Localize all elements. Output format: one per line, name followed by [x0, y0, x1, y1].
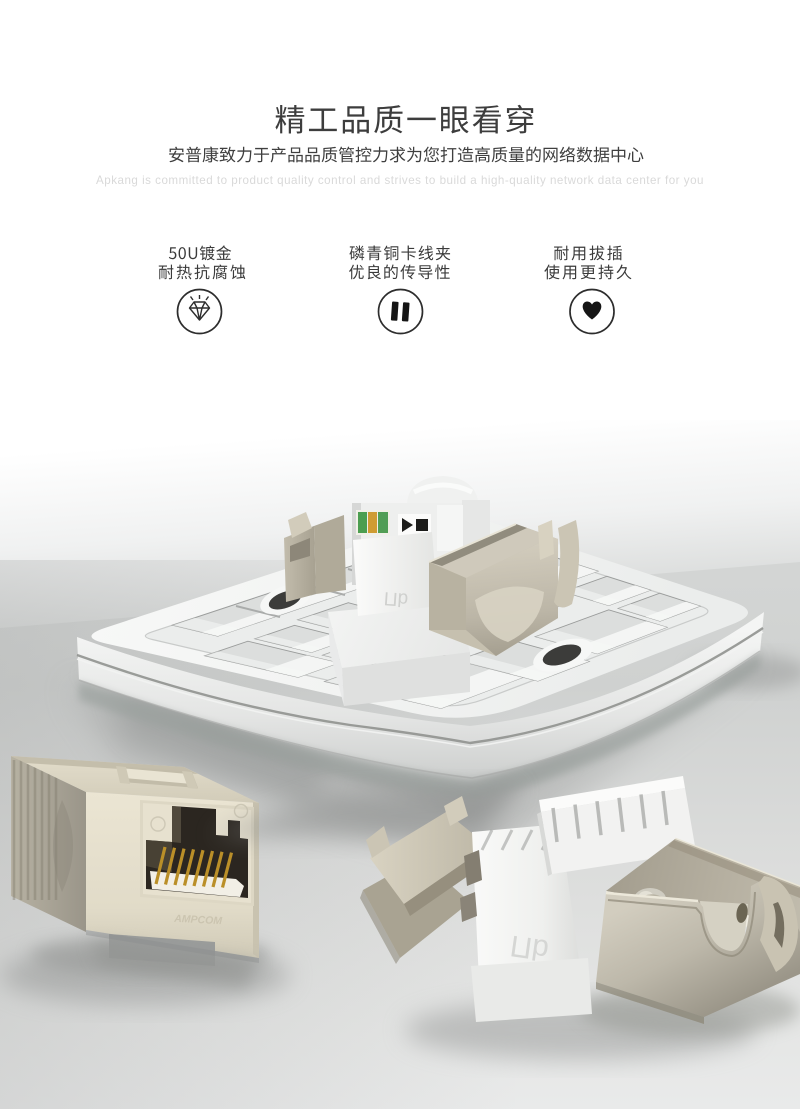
- svg-text:dΠ: dΠ: [383, 587, 409, 610]
- svg-text:dΠ: dΠ: [508, 929, 551, 967]
- svg-text:AMPCOM: AMPCOM: [173, 913, 223, 928]
